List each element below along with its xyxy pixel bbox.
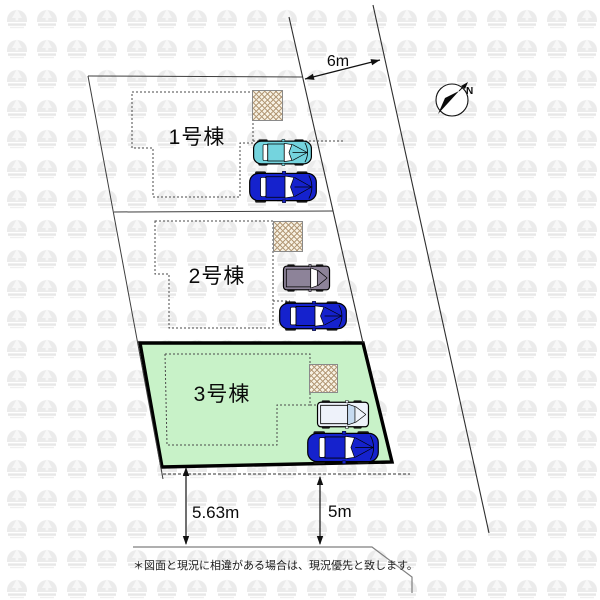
- site-plan-drawing: 6m N 5.63m 5m 1号棟 2号棟 3号棟: [0, 0, 600, 600]
- car-topview: [254, 139, 312, 165]
- car-topview: [308, 431, 379, 463]
- road-width-label: 6m: [327, 53, 349, 70]
- lot-1-label: 1号棟: [169, 126, 226, 149]
- background: [0, 0, 600, 600]
- hatch-area-lot3: [309, 364, 338, 393]
- lot-3-label: 3号棟: [194, 383, 251, 406]
- hatch-area-lot1: [252, 90, 283, 121]
- disclaimer-note: ＊図面と現況に相違がある場合は、現況優先と致します。: [133, 558, 418, 572]
- site-plan-canvas: 6m N 5.63m 5m 1号棟 2号棟 3号棟: [0, 0, 600, 600]
- car-topview: [280, 301, 347, 330]
- frontage-left-label: 5.63m: [192, 503, 239, 522]
- car-topview: [250, 171, 317, 202]
- compass-north-label: N: [466, 86, 473, 97]
- car-topview: [318, 400, 369, 428]
- frontage-right-label: 5m: [328, 502, 352, 521]
- car-topview: [283, 264, 329, 291]
- hatch-area-lot2: [273, 221, 303, 252]
- lot-2-label: 2号棟: [189, 265, 246, 288]
